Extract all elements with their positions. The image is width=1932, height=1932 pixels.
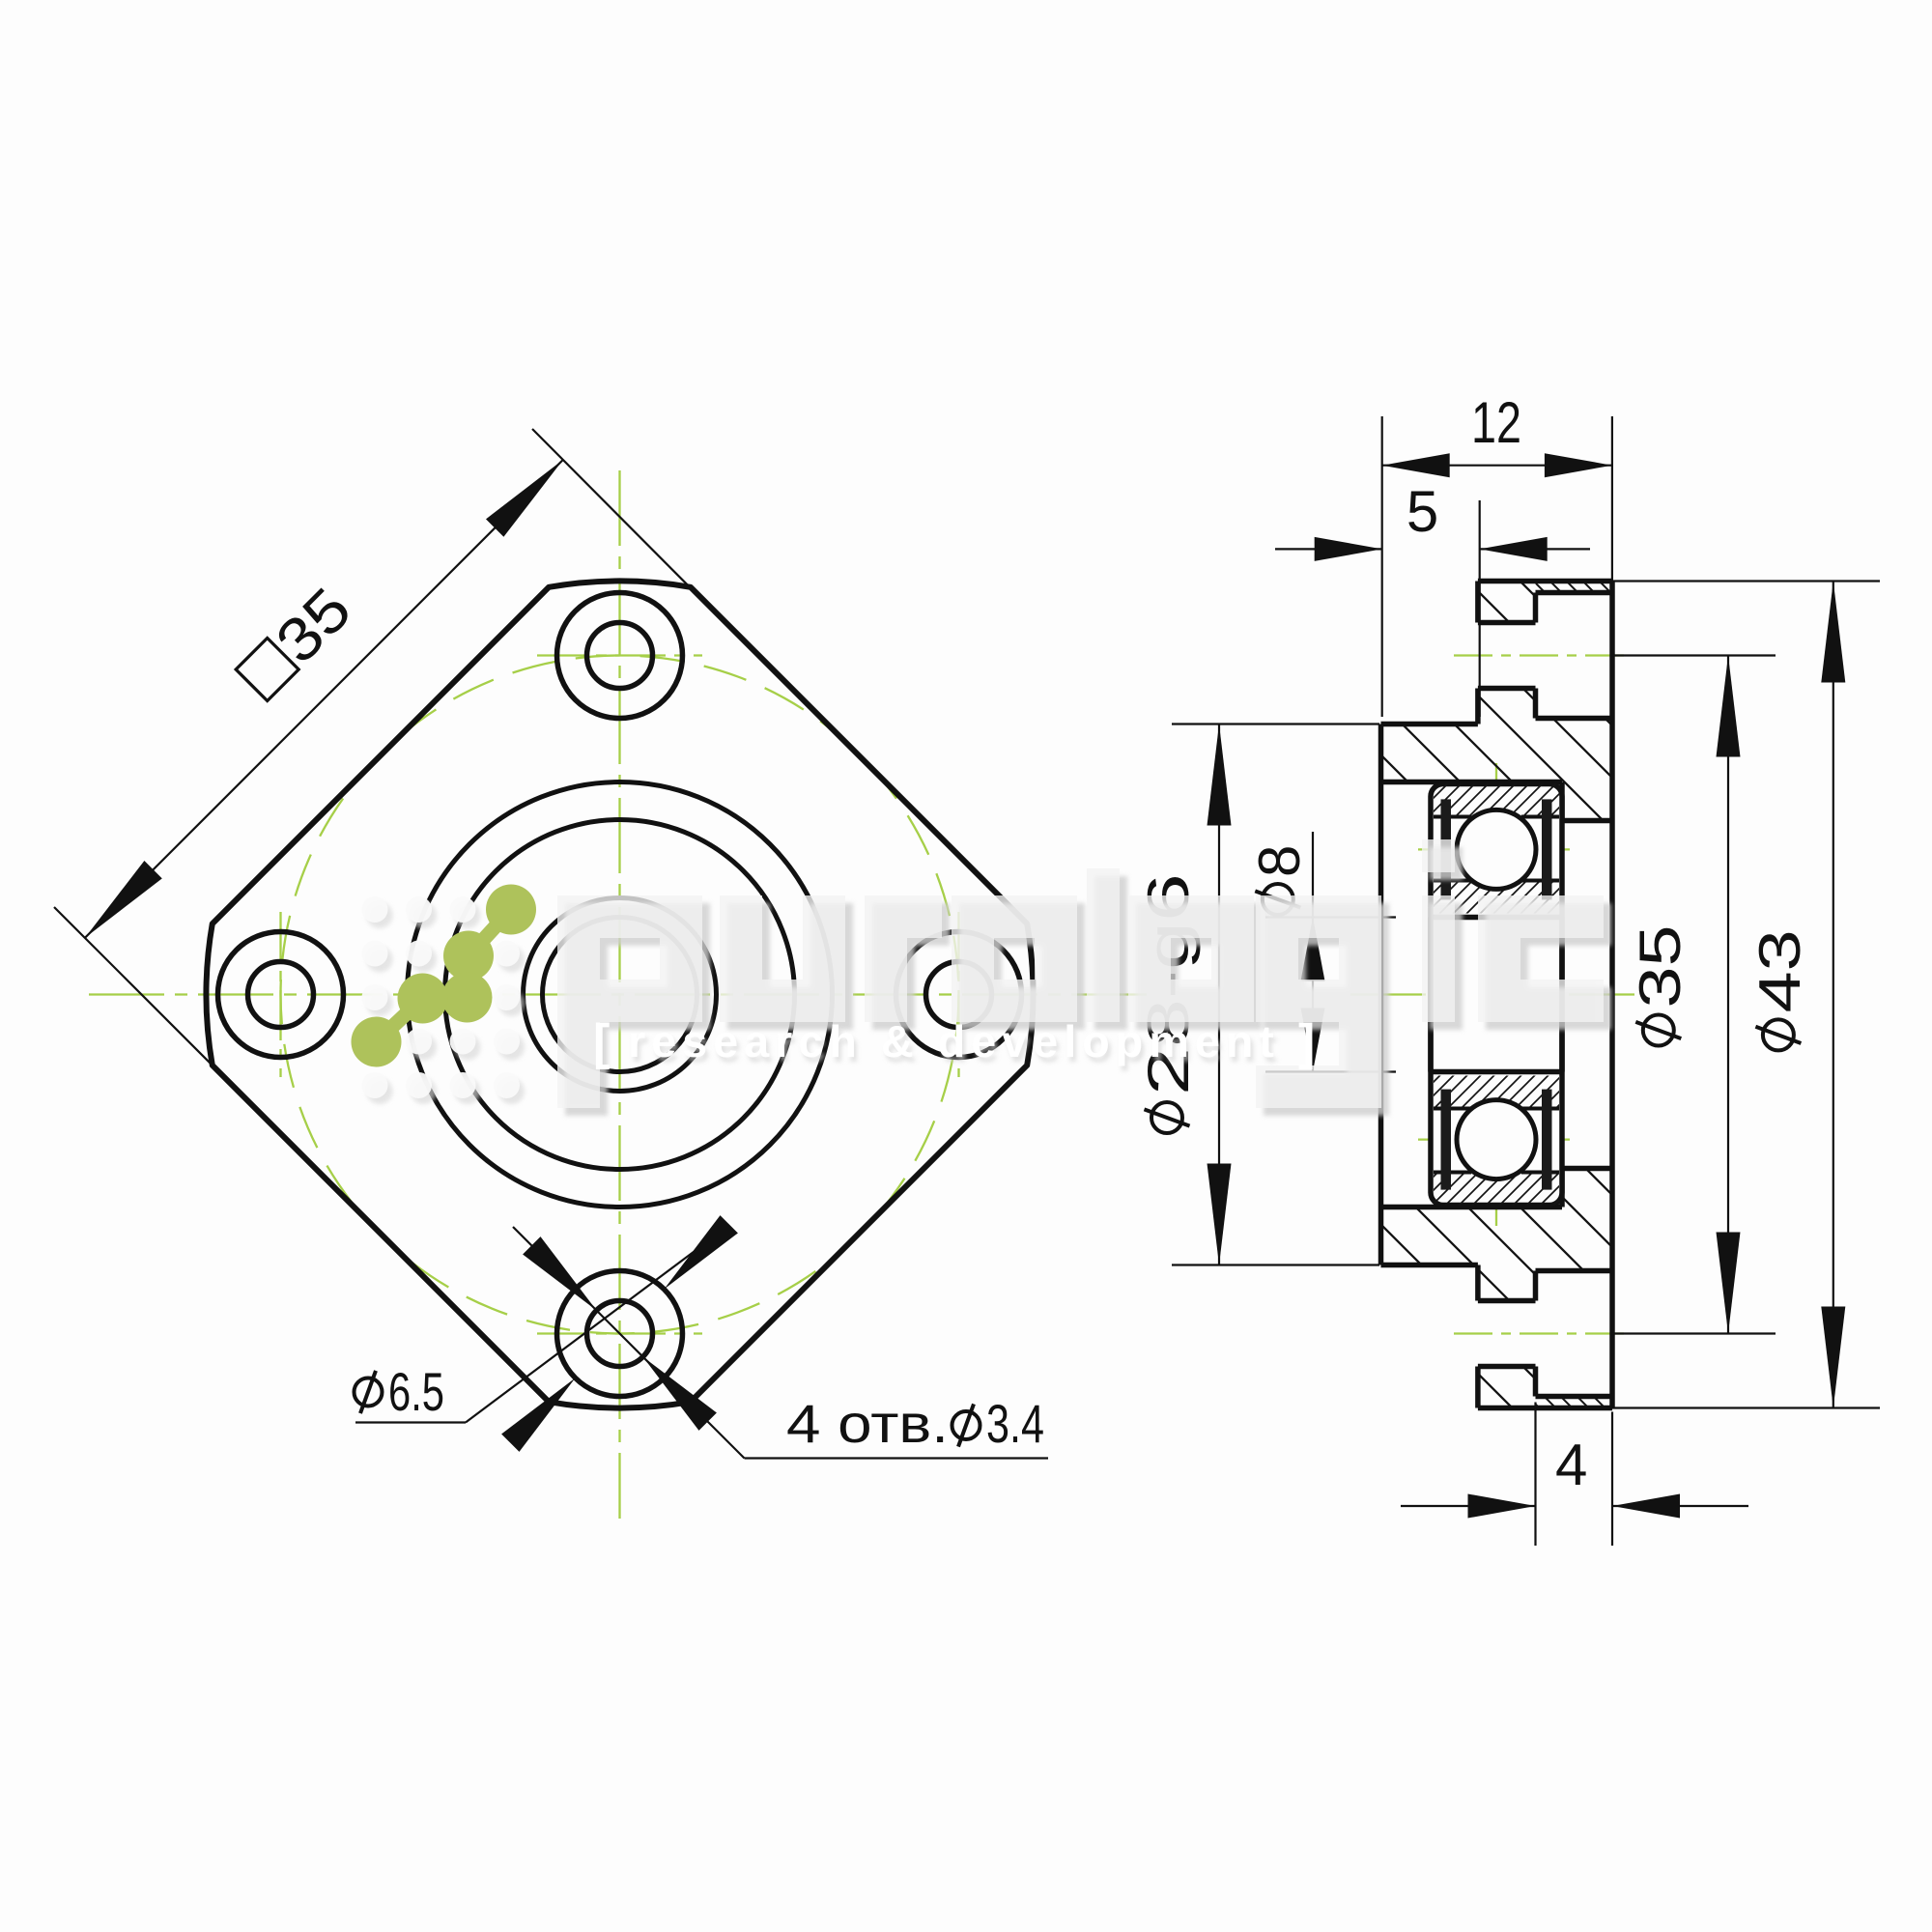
- svg-text:research & development: research & development: [628, 1016, 1280, 1066]
- svg-text:43: 43: [1747, 929, 1812, 1012]
- svg-text:3.4: 3.4: [986, 1393, 1044, 1454]
- svg-text:8: 8: [1247, 845, 1312, 877]
- svg-text:[: [: [593, 1014, 610, 1070]
- svg-text:]: ]: [1298, 1014, 1315, 1070]
- svg-text:5: 5: [1406, 479, 1438, 544]
- svg-text:12: 12: [1471, 390, 1521, 455]
- svg-text:35: 35: [1628, 925, 1692, 1009]
- svg-text:4: 4: [1555, 1433, 1587, 1497]
- svg-text:6.5: 6.5: [388, 1361, 444, 1422]
- svg-text:4 отв.: 4 отв.: [786, 1393, 949, 1454]
